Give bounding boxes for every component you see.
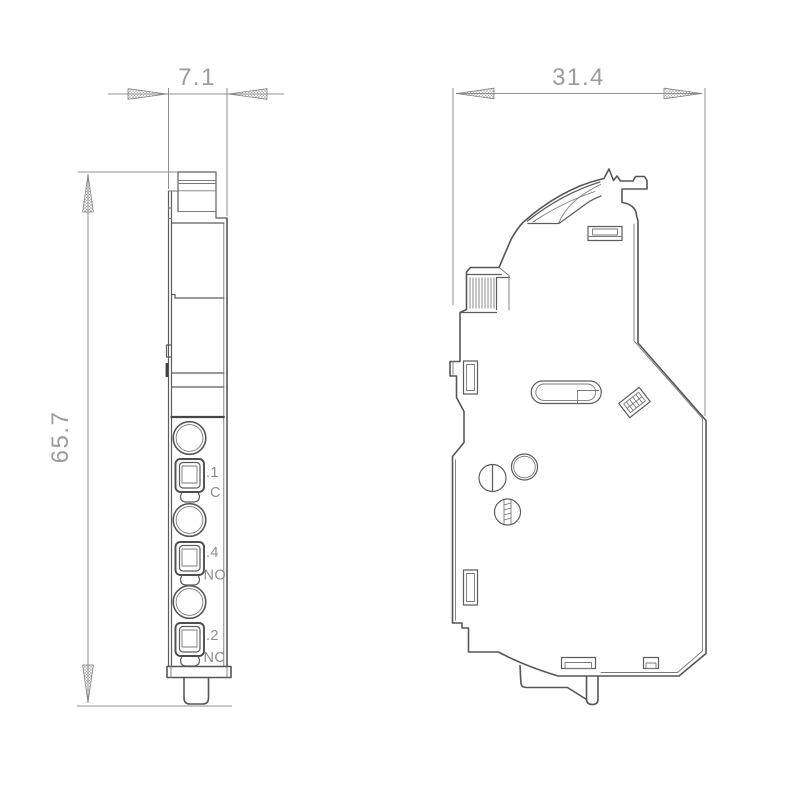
clip-inner: [565, 663, 592, 669]
latch-slot: [588, 227, 622, 241]
screw-hole-inner: [176, 507, 203, 534]
dimension-label-side-width: 31.4: [552, 64, 605, 91]
screw-head: [495, 499, 521, 525]
left-edge: [169, 191, 172, 667]
terminal-label-number: .2: [206, 628, 219, 644]
rail-clip-large: [562, 658, 596, 669]
terminal-window: [182, 630, 197, 647]
dimension-arrow: [457, 88, 495, 99]
screw-hole-inner: [176, 425, 203, 452]
front-view: .1 C .4 NO .2 NC: [167, 172, 232, 704]
terminal-opening-4: [176, 542, 205, 585]
dimension-arrow: [128, 89, 167, 100]
screw-hole-outer: [173, 504, 206, 537]
terminal-label-code: C: [210, 485, 221, 501]
base-plate-inner: [171, 667, 227, 678]
technical-drawing-page: 7.1 31.4 65.7: [0, 0, 800, 800]
dimension-front-width: 7.1: [108, 64, 284, 216]
top-tab: [178, 172, 216, 212]
screw-hole-outer: [173, 422, 206, 455]
dimension-arrow: [83, 665, 94, 703]
slot-inner: [467, 574, 475, 602]
oblong-inner: [536, 384, 596, 400]
clip-outer: [562, 658, 596, 669]
side-bottom-pin: [587, 676, 599, 705]
dimension-label-front-width: 7.1: [178, 64, 216, 91]
mounting-boss: [460, 268, 510, 313]
terminal-label-code: NC: [204, 650, 226, 666]
terminal-label-number: .1: [206, 465, 219, 481]
terminal-opening-2: [176, 623, 205, 666]
base-plate: [167, 667, 231, 678]
slot-inner: [467, 365, 475, 391]
clip-inner: [646, 663, 656, 669]
terminal-window: [182, 549, 197, 566]
body-divider: [172, 295, 224, 299]
round-pin-hole: [479, 465, 506, 492]
technical-drawing: 7.1 31.4 65.7: [0, 0, 800, 800]
screw-hole: [173, 504, 206, 537]
round-boss-outer: [512, 454, 538, 480]
slot-outer: [464, 361, 478, 394]
dimension-side-width: 31.4: [453, 64, 705, 416]
latch-slot-inner: [593, 229, 618, 235]
body-divider: [172, 373, 224, 387]
round-boss-inner: [514, 456, 536, 478]
screw-slot-hatch: [504, 503, 511, 520]
left-edge-ticks: [169, 191, 179, 219]
terminal-clamp: [181, 656, 200, 666]
round-boss: [512, 454, 538, 480]
side-outline: [450, 169, 706, 676]
oblong-slot: [531, 381, 601, 404]
screw-hole-inner: [176, 589, 203, 616]
bottom-pin: [184, 678, 209, 705]
inner-wall-right: [601, 224, 703, 673]
terminal-window: [182, 466, 197, 483]
dimension-arrow: [83, 175, 94, 213]
top-right-step: [216, 212, 227, 219]
boss-hatching: [470, 278, 494, 309]
hatched-marking: [619, 387, 651, 417]
dimension-label-height: 65.7: [47, 411, 74, 464]
screw-hole: [173, 586, 206, 619]
din-rail-foot: [520, 666, 587, 700]
terminal-opening-1: [176, 459, 205, 502]
screw-hole: [173, 422, 206, 455]
rail-clip-small: [644, 658, 659, 669]
terminal-clamp: [181, 575, 200, 585]
side-slot-upper: [464, 361, 478, 394]
terminal-clamp: [181, 492, 200, 502]
terminal-label-number: .4: [206, 545, 219, 561]
terminal-label-code: NO: [204, 568, 227, 584]
dimension-arrow: [229, 89, 268, 100]
boss-bevel: [499, 268, 509, 311]
side-slot-lower: [464, 570, 478, 605]
slot-outer: [464, 570, 478, 605]
top-tab-lines: [178, 181, 216, 212]
dimension-arrow: [664, 88, 702, 99]
screw-hole-outer: [173, 586, 206, 619]
side-view: [450, 169, 706, 705]
screw-head-circle: [495, 499, 521, 525]
